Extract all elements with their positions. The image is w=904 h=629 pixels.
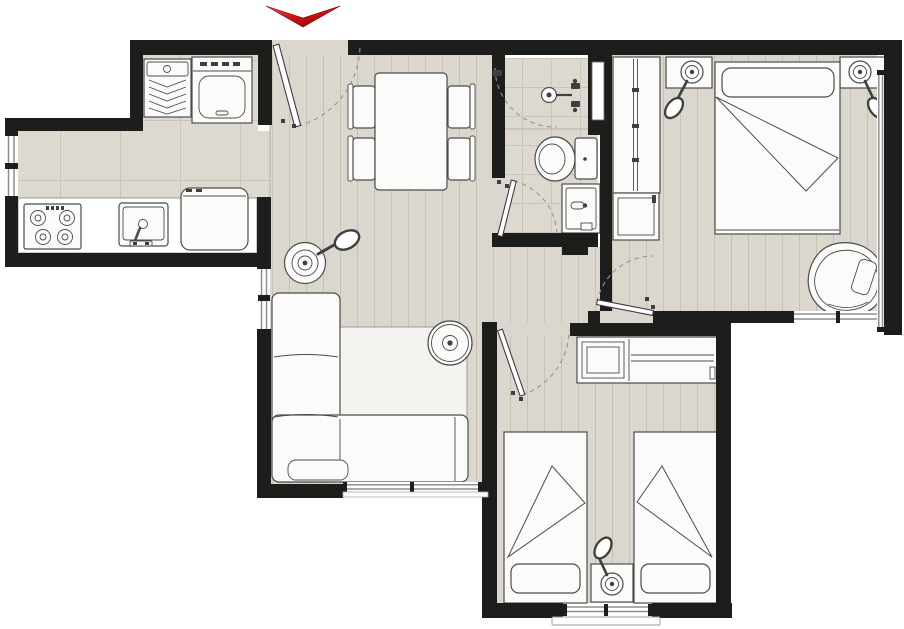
window-living-bottom (343, 482, 488, 497)
window-kitchen-left (5, 136, 18, 196)
chair-icon (470, 136, 475, 181)
pillow (722, 68, 834, 97)
chair-icon (353, 138, 375, 180)
kitchen (18, 188, 257, 253)
threshold-twin-door (497, 322, 570, 336)
chair-icon (448, 86, 470, 128)
wardrobe-icon (613, 57, 660, 193)
single-bed-icon (504, 432, 587, 603)
dresser-icon (613, 193, 659, 240)
window-master-bottom (790, 311, 884, 323)
washbasin-icon (562, 184, 600, 233)
toilet-icon (535, 137, 597, 181)
duct-shaft (592, 62, 604, 120)
floor-hallway (490, 247, 602, 323)
dining-table-icon (375, 73, 447, 190)
kitchen-sink-icon (119, 203, 168, 246)
cooktop-icon (24, 204, 81, 249)
armchair-icon (808, 243, 884, 317)
wardrobe-icon (577, 337, 718, 383)
laundry (144, 57, 252, 123)
window-master-right (877, 70, 884, 332)
window-sill (552, 617, 660, 625)
pillow (511, 564, 580, 593)
chair-icon (448, 138, 470, 180)
window-sill (343, 492, 488, 497)
floor-plan (0, 0, 904, 629)
floor-plan-drawing (0, 0, 904, 629)
chair-icon (348, 84, 353, 129)
red-arrow-down-icon (266, 6, 340, 27)
chair-icon (353, 86, 375, 128)
chair-icon (470, 84, 475, 129)
double-bed-icon (715, 62, 840, 234)
side-table-icon (428, 321, 472, 365)
washing-machine-icon (192, 57, 252, 123)
single-bed-icon (634, 432, 717, 603)
pillow (641, 564, 710, 593)
refrigerator-icon (181, 188, 248, 250)
sofa-cushion (288, 460, 348, 480)
laundry-sink-icon (144, 59, 191, 117)
window-twin-bottom (552, 604, 660, 625)
window-living-left (258, 269, 270, 329)
chair-icon (348, 136, 353, 181)
